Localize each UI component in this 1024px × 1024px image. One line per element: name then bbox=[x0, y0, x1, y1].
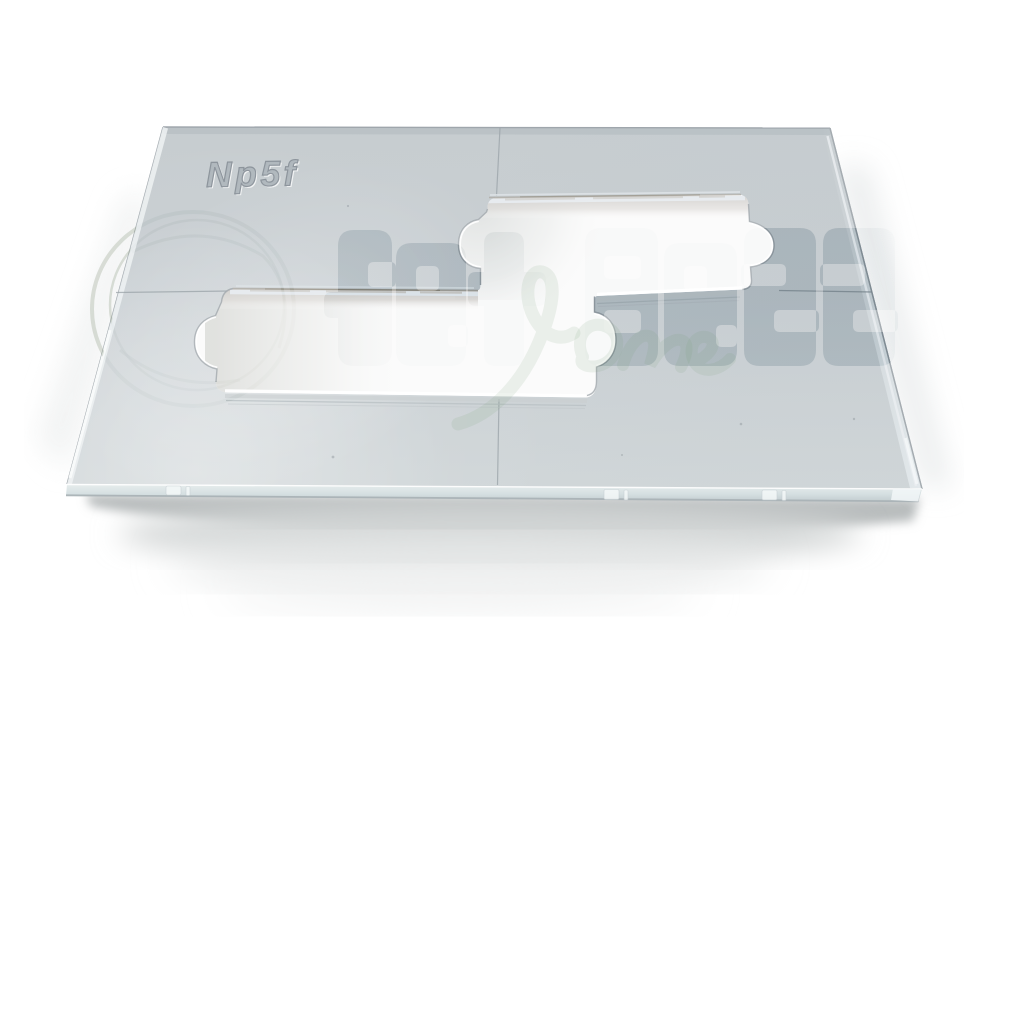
svg-text:Np5f: Np5f bbox=[206, 153, 300, 195]
